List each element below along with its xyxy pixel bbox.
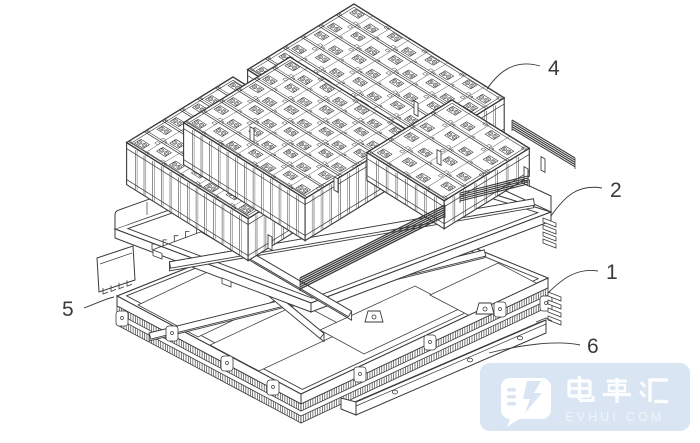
svg-text:2: 2	[610, 179, 622, 202]
svg-text:1: 1	[606, 261, 618, 284]
svg-text:EVHUI.COM: EVHUI.COM	[565, 410, 665, 424]
svg-text:5: 5	[62, 298, 74, 321]
svg-text:4: 4	[548, 57, 560, 80]
svg-text:6: 6	[587, 335, 599, 358]
